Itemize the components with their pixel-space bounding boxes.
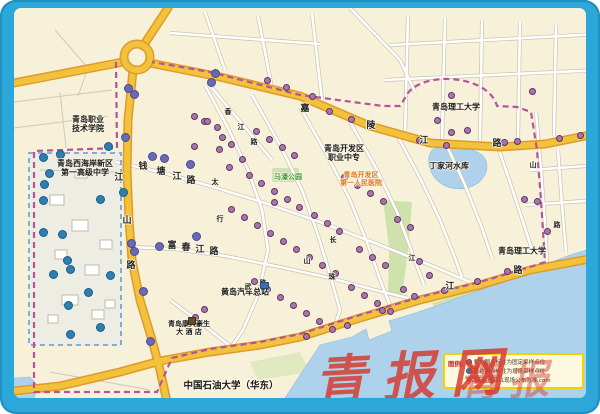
plum-station-dot: [296, 204, 303, 211]
plum-station-dot: [464, 127, 471, 134]
plum-station-dot: [400, 286, 407, 293]
plum-station-dot: [367, 190, 374, 197]
plum-station-dot: [448, 129, 455, 136]
plum-station-dot: [258, 180, 265, 187]
legend-title: 图例:: [448, 358, 464, 385]
plum-station-dot: [253, 128, 260, 135]
plum-station-dot: [284, 196, 291, 203]
indigo-station-dot: [186, 160, 195, 169]
indigo-station-dot: [146, 337, 155, 346]
plum-station-dot: [228, 141, 235, 148]
road-name-label: 富: [167, 241, 176, 251]
plum-station-dot: [303, 310, 310, 317]
indigo-station-dot: [192, 232, 201, 241]
road-name-label: 太: [212, 178, 219, 186]
road-name-label: 江: [445, 282, 454, 292]
plum-station-dot: [319, 262, 326, 269]
plum-station-dot: [382, 262, 389, 269]
map-screenshot: 青岛职业 技术学院青岛西海岸新区 第一高级中学青岛开发区 职业中专青岛开发区 第…: [0, 0, 600, 414]
plum-station-dot: [324, 220, 331, 227]
plum-station-dot: [246, 172, 253, 179]
poi-label: 青岛理工大学: [432, 102, 480, 111]
blue-station-dot: [66, 330, 75, 339]
plum-station-dot: [293, 246, 300, 253]
blue-station-dot: [64, 301, 73, 310]
plum-station-dot: [309, 93, 316, 100]
plum-station-dot: [504, 268, 511, 275]
road-name-label: 山: [530, 161, 537, 169]
plum-station-dot: [204, 118, 211, 125]
plum-station-dot: [228, 206, 235, 213]
road-name-label: 路: [251, 138, 258, 146]
road-name-label: 长: [330, 236, 337, 244]
road-name-label: 江: [409, 254, 416, 262]
poi-label: 马濠公园: [274, 173, 302, 181]
plum-station-dot: [356, 246, 363, 253]
plum-station-dot: [474, 278, 481, 285]
plum-station-dot: [216, 146, 223, 153]
blue-station-dot: [49, 270, 58, 279]
legend-item-text: 紫色圆点标注为固定采样点位: [474, 358, 546, 366]
plum-station-dot: [411, 293, 418, 300]
blue-station-dot: [45, 169, 54, 178]
blue-station-dot: [40, 180, 49, 189]
plum-station-dot: [443, 142, 450, 149]
legend-box: 图例: 紫色圆点标注为固定采样点位 蓝色圆点标注为增设采样点位 具体点位信息以现…: [443, 353, 584, 389]
plum-station-dot: [501, 139, 508, 146]
road-name-label: 山: [122, 216, 131, 226]
plum-station-dot: [254, 222, 261, 229]
road-name-label: 行: [217, 215, 224, 223]
poi-label: 青岛西海岸新区 第一高级中学: [57, 159, 113, 177]
plum-station-dot: [201, 306, 208, 313]
plum-station-dot: [251, 278, 258, 285]
plum-station-dot: [214, 124, 221, 131]
poi-label: 青岛开发区 第一人民医院: [340, 171, 382, 187]
bus-station-icon: [260, 282, 269, 289]
plum-station-dot: [521, 196, 528, 203]
plum-station-dot: [290, 302, 297, 309]
road-name-label: 路: [126, 261, 135, 271]
poi-label: 丁家河水库: [429, 161, 469, 170]
poi-label: 青岛开发区 职业中专: [324, 144, 364, 162]
road-name-label: 塘: [156, 167, 165, 177]
plum-station-dot: [219, 134, 226, 141]
plum-station-dot: [311, 212, 318, 219]
plum-station-dot: [348, 284, 355, 291]
blue-station-dot: [119, 188, 128, 197]
blue-station-dot: [39, 228, 48, 237]
plum-station-dot: [379, 307, 386, 314]
road-name-label: 路: [554, 221, 561, 229]
plum-station-dot: [348, 116, 355, 123]
plum-station-dot: [394, 216, 401, 223]
blue-station-dot: [96, 323, 105, 332]
road-name-label: 春: [181, 243, 190, 253]
road-name-label: 武: [245, 283, 252, 291]
plum-station-dot: [279, 144, 286, 151]
hotel-icon: [188, 317, 196, 325]
plum-station-dot: [416, 258, 423, 265]
legend-item: 具体点位信息以现场公布为准.com: [466, 376, 551, 384]
plum-station-dot: [303, 333, 310, 340]
plum-station-dot: [280, 238, 287, 245]
plum-station-dot: [271, 199, 278, 206]
map-canvas: 青岛职业 技术学院青岛西海岸新区 第一高级中学青岛开发区 职业中专青岛开发区 第…: [14, 8, 586, 398]
road-name-label: 山: [304, 257, 311, 265]
indigo-station-dot: [121, 133, 130, 142]
plum-station-dot: [266, 136, 273, 143]
indigo-station-dot: [139, 287, 148, 296]
indigo-station-dot: [130, 247, 139, 256]
road-name-label: 路: [513, 266, 522, 276]
plum-station-dot: [514, 138, 521, 145]
poi-label: 中国石油大学（华东）: [183, 382, 278, 393]
blue-station-dot: [106, 271, 115, 280]
indigo-station-dot: [155, 242, 164, 251]
plum-station-dot: [191, 143, 198, 150]
legend-item-text: 蓝色圆点标注为增设采样点位: [474, 367, 546, 375]
blue-station-dot: [96, 195, 105, 204]
plum-station-dot: [434, 117, 441, 124]
road-name-label: 路: [186, 176, 195, 186]
plum-station-dot: [267, 230, 274, 237]
plum-station-dot: [380, 198, 387, 205]
plum-station-dot: [326, 108, 333, 115]
road-name-label: 嘉: [300, 104, 309, 114]
plum-station-dot: [283, 84, 290, 91]
poi-label: 青岛理工大学: [498, 246, 546, 255]
plum-station-dot: [239, 156, 246, 163]
plum-station-dot: [426, 272, 433, 279]
indigo-station-dot: [160, 154, 169, 163]
road-name-label: 香: [225, 108, 232, 116]
plum-station-dot: [534, 198, 541, 205]
legend-item-text: 具体点位信息以现场公布为准.com: [466, 376, 551, 384]
plum-station-dot: [374, 300, 381, 307]
road-name-label: 江: [114, 173, 123, 183]
road-name-label: 江: [419, 136, 428, 146]
indigo-station-dot: [148, 152, 157, 161]
plum-station-dot: [577, 132, 584, 139]
blue-station-dot: [63, 256, 72, 265]
legend-item: 紫色圆点标注为固定采样点位: [466, 358, 551, 366]
plum-station-dot: [556, 135, 563, 142]
plum-station-dot: [329, 326, 336, 333]
plum-station-dot: [316, 318, 323, 325]
plum-station-dot: [344, 322, 351, 329]
blue-station-dot: [104, 142, 113, 151]
blue-station-dot: [39, 153, 48, 162]
blue-dot-icon: [466, 368, 472, 374]
road-name-label: 钱: [138, 162, 147, 172]
road-name-label: 珠: [329, 273, 336, 281]
indigo-station-dot: [130, 90, 139, 99]
plum-station-dot: [291, 152, 298, 159]
plum-station-dot: [407, 224, 414, 231]
plum-station-dot: [387, 308, 394, 315]
plum-station-dot: [361, 292, 368, 299]
road-name-label: 陵: [366, 121, 375, 131]
indigo-station-dot: [207, 78, 216, 87]
road-name-label: 江: [195, 245, 204, 255]
plum-dot-icon: [466, 359, 472, 365]
road-name-label: 路: [209, 247, 218, 257]
plum-station-dot: [336, 228, 343, 235]
plum-station-dot: [271, 188, 278, 195]
plum-station-dot: [241, 214, 248, 221]
plum-station-dot: [191, 113, 198, 120]
road-name-label: 江: [172, 172, 181, 182]
blue-station-dot: [39, 196, 48, 205]
road-name-label: 江: [238, 123, 245, 131]
indigo-station-dot: [211, 69, 220, 78]
road-name-label: 路: [492, 139, 501, 149]
blue-station-dot: [58, 230, 67, 239]
plum-station-dot: [544, 228, 551, 235]
blue-station-dot: [56, 150, 65, 159]
plum-station-dot: [369, 254, 376, 261]
plum-station-dot: [448, 92, 455, 99]
blue-station-dot: [66, 265, 75, 274]
plum-station-dot: [226, 164, 233, 171]
legend-item: 蓝色圆点标注为增设采样点位: [466, 367, 551, 375]
plum-station-dot: [529, 88, 536, 95]
poi-label: 青岛职业 技术学院: [72, 115, 104, 133]
plum-station-dot: [277, 294, 284, 301]
legend-rows: 紫色圆点标注为固定采样点位 蓝色圆点标注为增设采样点位 具体点位信息以现场公布为…: [466, 357, 551, 385]
blue-station-dot: [84, 288, 93, 297]
plum-station-dot: [264, 77, 271, 84]
